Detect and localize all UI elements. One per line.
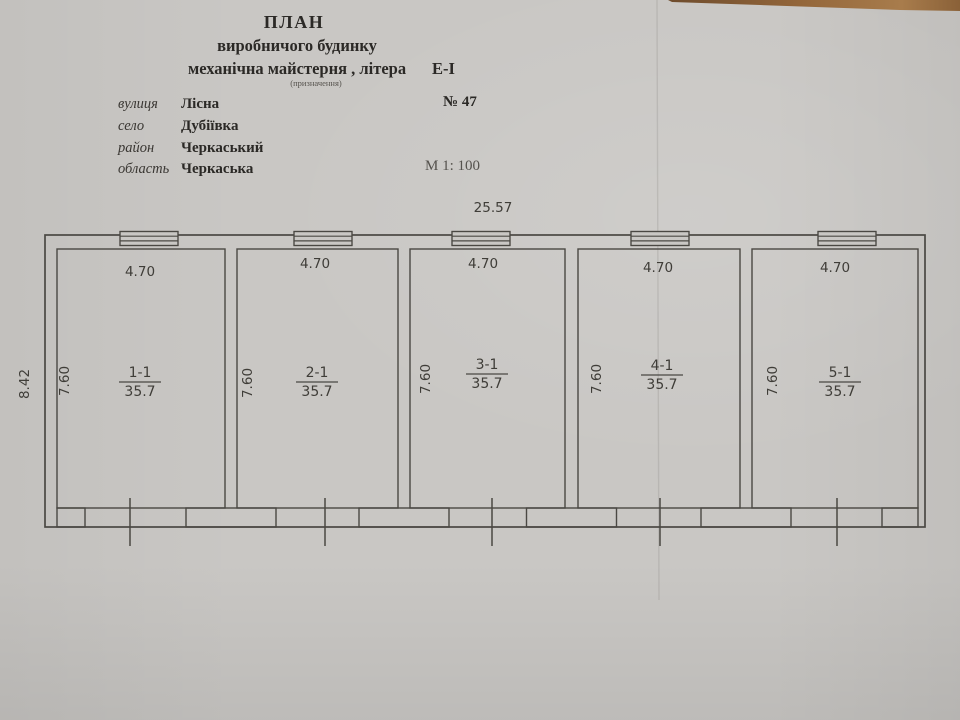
region-value: Черкаська xyxy=(181,161,254,177)
room-width-dimension: 4.70 xyxy=(820,260,850,276)
document-header: ПЛАН виробничого будинку механічна майст… xyxy=(188,12,455,88)
room-area: 35.7 xyxy=(471,376,502,392)
room-depth-dimension: 7.60 xyxy=(589,364,605,394)
window-symbols xyxy=(120,232,876,246)
room-number: 4-1 xyxy=(651,358,674,374)
room-depth-dimension: 7.60 xyxy=(57,366,73,396)
wall-pier xyxy=(57,508,85,527)
district-label: район xyxy=(117,140,154,156)
doc-letter: Е-І xyxy=(432,59,455,78)
room-number: 2-1 xyxy=(306,365,329,381)
wall-piers xyxy=(57,508,918,527)
room-2-labels: 4.70 7.60 2-1 35.7 xyxy=(240,256,338,400)
wall-pier xyxy=(359,508,449,527)
desk-edge-artifact xyxy=(668,0,960,11)
street-value: Лісна xyxy=(181,96,220,112)
room-area: 35.7 xyxy=(301,384,332,400)
window-icon xyxy=(120,232,178,246)
window-icon xyxy=(631,232,689,246)
door-axis-ticks xyxy=(130,498,837,546)
room-width-dimension: 4.70 xyxy=(125,264,155,280)
window-icon xyxy=(818,232,876,246)
floor-plan: 25.57 8.42 xyxy=(17,200,925,546)
room-number: 5-1 xyxy=(829,365,852,381)
room-depth-dimension: 7.60 xyxy=(418,364,434,394)
room-depth-dimension: 7.60 xyxy=(240,368,256,398)
region-label: область xyxy=(118,161,170,177)
room-width-dimension: 4.70 xyxy=(643,260,673,276)
room-4-labels: 4.70 7.60 4-1 35.7 xyxy=(589,260,683,394)
room-area: 35.7 xyxy=(646,377,677,393)
designation-note: (призначення) xyxy=(290,78,342,88)
wall-pier xyxy=(527,508,617,527)
room-3-labels: 4.70 7.60 3-1 35.7 xyxy=(418,256,508,394)
floor-plan-canvas: ПЛАН виробничого будинку механічна майст… xyxy=(0,0,960,720)
scale-label: М 1: 100 xyxy=(425,158,480,174)
building-number: № 47 xyxy=(443,94,477,110)
window-icon xyxy=(294,232,352,246)
doc-subtitle: виробничого будинку xyxy=(217,36,378,55)
room-1-labels: 4.70 7.60 1-1 35.7 xyxy=(57,264,161,400)
scanned-floor-plan-page: ПЛАН виробничого будинку механічна майст… xyxy=(0,0,960,720)
room-width-dimension: 4.70 xyxy=(468,256,498,272)
wall-pier xyxy=(882,508,918,527)
room-width-dimension: 4.70 xyxy=(300,256,330,272)
wall-pier xyxy=(186,508,276,527)
room-area: 35.7 xyxy=(124,384,155,400)
district-value: Черкаський xyxy=(181,140,264,156)
overall-depth-dimension: 8.42 xyxy=(17,369,33,399)
room-depth-dimension: 7.60 xyxy=(765,366,781,396)
paper-fold-line xyxy=(657,0,659,600)
room-number: 3-1 xyxy=(476,357,499,373)
doc-designation: механічна майстерня , літера xyxy=(188,59,406,78)
street-label: вулиця xyxy=(118,96,158,112)
doc-title: ПЛАН xyxy=(264,12,324,32)
overall-width-dimension: 25.57 xyxy=(474,200,513,216)
address-block: вулиця Лісна № 47 село Дубіївка район Че… xyxy=(117,94,480,177)
window-icon xyxy=(452,232,510,246)
wall-pier xyxy=(701,508,791,527)
village-label: село xyxy=(118,118,144,134)
village-value: Дубіївка xyxy=(181,118,239,134)
room-area: 35.7 xyxy=(824,384,855,400)
room-5-labels: 4.70 7.60 5-1 35.7 xyxy=(765,260,861,400)
room-number: 1-1 xyxy=(129,365,152,381)
